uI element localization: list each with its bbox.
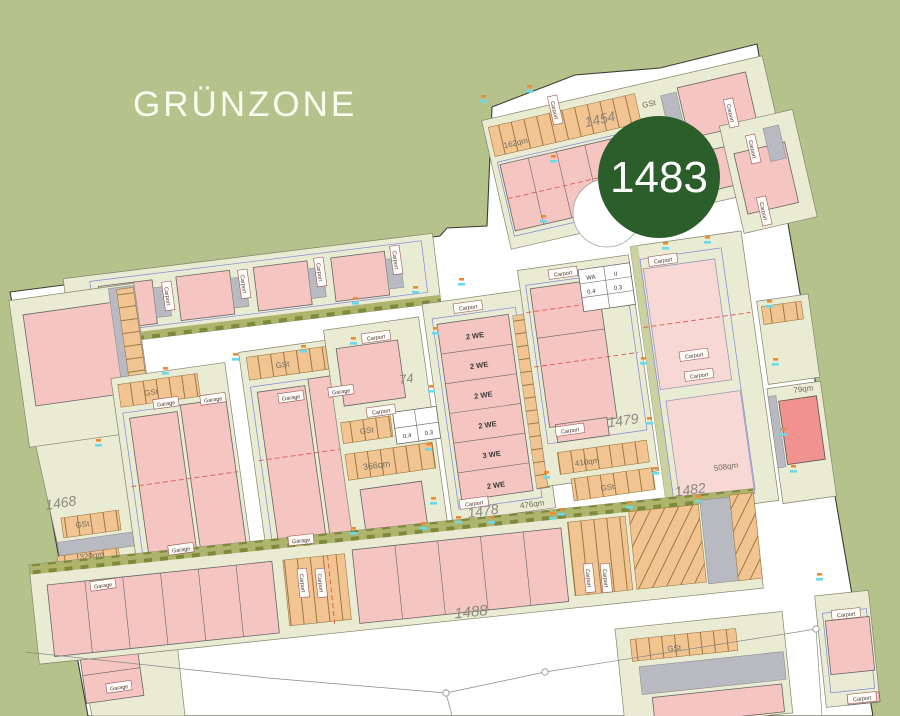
zoning-stamp-mid: 0.4 0.3 — [393, 406, 441, 444]
survey-node-2 — [542, 669, 548, 675]
stamp-04: 0.4 — [587, 289, 597, 296]
house-1474-top — [336, 340, 405, 406]
parcel-number-1488: 1488 — [453, 602, 489, 622]
lot-badge[interactable]: 1483 — [598, 116, 720, 238]
site-plan-svg: GRÜNZONE 1468 GSt 320qm — [0, 0, 900, 716]
house-br-right — [825, 616, 874, 674]
stamp-mid-04: 0.4 — [403, 433, 413, 440]
house-a3 — [253, 261, 312, 311]
zoning-stamp-1479: WA II 0.4 0.3 — [578, 263, 635, 312]
stamp-03: 0.3 — [614, 285, 624, 292]
building-left-large — [23, 302, 127, 406]
parking-diagonal-1488a — [629, 504, 707, 589]
greenzone-label: GRÜNZONE — [133, 85, 357, 124]
house-a4 — [331, 251, 390, 301]
site-plan-stage: GRÜNZONE 1468 GSt 320qm — [0, 0, 900, 716]
stamp-mid-03: 0.3 — [425, 430, 435, 437]
survey-node-3 — [813, 626, 819, 632]
survey-node-1 — [443, 690, 449, 696]
carport-bay-1488b — [567, 516, 632, 596]
lot-badge-number: 1483 — [610, 153, 708, 202]
house-a2 — [176, 270, 235, 320]
parcel-number-74: 74 — [398, 370, 414, 387]
